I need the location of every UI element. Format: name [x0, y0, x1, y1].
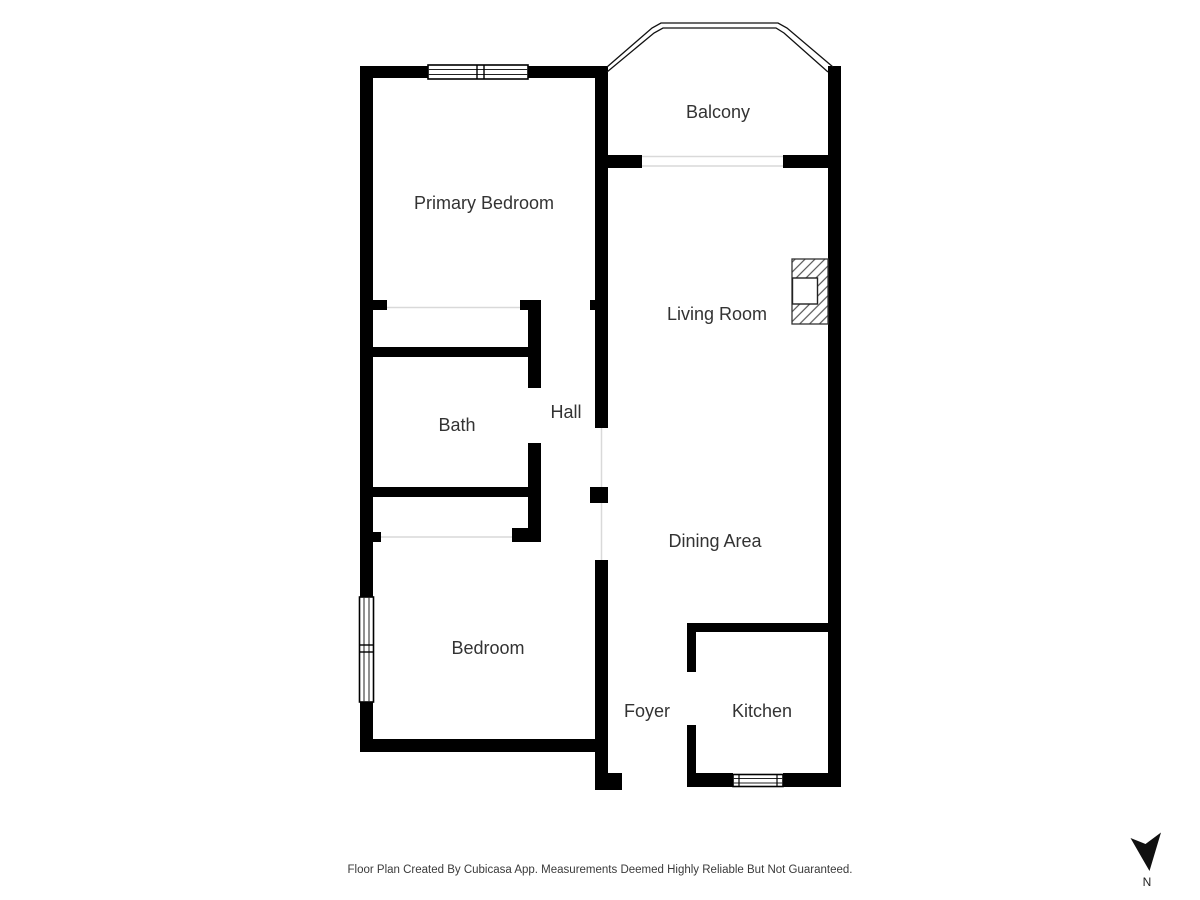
- balcony-railing: [607, 23, 833, 72]
- north-arrow-label: N: [1143, 875, 1152, 889]
- wall: [360, 66, 428, 78]
- wall: [512, 528, 528, 542]
- room-label-foyer: Foyer: [624, 701, 670, 721]
- wall: [520, 300, 541, 310]
- north-arrow-shape: [1131, 833, 1162, 872]
- room-label-hall: Hall: [550, 402, 581, 422]
- room-label-bath: Bath: [438, 415, 475, 435]
- walls: [360, 66, 841, 790]
- wall: [608, 155, 642, 168]
- room-label-dining-area: Dining Area: [668, 531, 762, 551]
- north-arrow-icon: N: [1131, 833, 1162, 890]
- wall: [595, 66, 608, 428]
- window-symbol: [733, 775, 783, 787]
- footer-disclaimer: Floor Plan Created By Cubicasa App. Meas…: [348, 864, 853, 876]
- wall: [360, 739, 608, 752]
- wall: [590, 487, 608, 503]
- wall: [595, 773, 622, 790]
- wall: [373, 347, 541, 357]
- wall: [783, 155, 828, 168]
- window-frame: [733, 775, 783, 787]
- wall: [595, 560, 608, 790]
- room-label-balcony: Balcony: [686, 102, 750, 122]
- wall: [373, 300, 387, 310]
- railing-outer-line: [607, 23, 833, 67]
- room-label-living-room: Living Room: [667, 304, 767, 324]
- wall: [360, 66, 373, 597]
- wall: [687, 623, 841, 632]
- window-frame: [428, 65, 528, 79]
- wall: [687, 773, 733, 787]
- window-frame: [360, 597, 374, 702]
- room-label-kitchen: Kitchen: [732, 701, 792, 721]
- wall: [687, 623, 696, 672]
- window-symbol: [360, 597, 374, 702]
- window-symbol: [428, 65, 528, 79]
- opening-lines: [381, 157, 783, 561]
- fireplace-symbol: [792, 259, 828, 324]
- wall: [528, 497, 541, 542]
- wall: [783, 773, 841, 787]
- fireplace-opening: [793, 278, 818, 304]
- room-label-bedroom: Bedroom: [451, 638, 524, 658]
- wall: [687, 725, 696, 773]
- floor-plan: Balcony Primary Bedroom Living Room Bath…: [0, 0, 1200, 900]
- floor-plan-page: Balcony Primary Bedroom Living Room Bath…: [0, 0, 1200, 900]
- wall: [828, 66, 841, 787]
- wall: [373, 532, 381, 542]
- wall: [590, 300, 608, 310]
- room-label-primary-bedroom: Primary Bedroom: [414, 193, 554, 213]
- wall: [373, 487, 541, 497]
